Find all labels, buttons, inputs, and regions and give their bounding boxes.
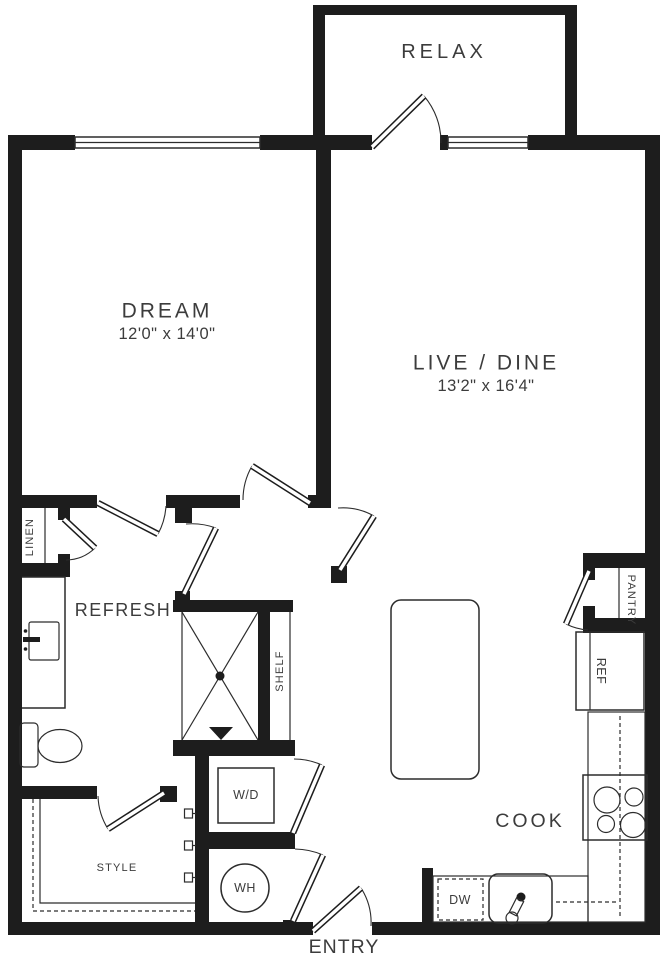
room-label-dream: DREAM <box>122 300 213 323</box>
wall-linen-bottom <box>8 563 70 577</box>
wall-exterior-top-2 <box>260 135 325 150</box>
vanity-faucet <box>23 637 40 642</box>
wall-balcony-right <box>565 5 577 137</box>
closet-label-pantry: PANTRY <box>625 575 637 626</box>
wall-exterior-top-5 <box>528 135 660 150</box>
wall-kitchen-stub <box>422 868 433 928</box>
wall-exterior-top-3 <box>325 135 372 150</box>
wall-bedroom-south-a <box>8 495 97 508</box>
closet-label-style: STYLE <box>97 862 138 874</box>
room-dims-live-dine: 13'2" x 16'4" <box>438 377 535 395</box>
wall-bedroom-living-divider <box>316 148 331 508</box>
closet-label-shelf: SHELF <box>274 650 286 691</box>
appliance-label-water-heater: WH <box>234 881 256 895</box>
appliance-label-dishwasher: DW <box>449 893 471 907</box>
wall-exterior-top-1 <box>8 135 75 150</box>
shower-drain <box>216 672 225 681</box>
wall-bedroom-south-c <box>308 495 331 508</box>
wall-linen-jamb-top <box>58 508 70 520</box>
wall-shower-bottom <box>173 740 295 756</box>
wall-shower-top <box>173 600 293 612</box>
wall-laundry-jamb-bottom <box>283 920 295 935</box>
room-label-relax: RELAX <box>401 41 487 63</box>
room-label-entry: ENTRY <box>309 936 380 958</box>
wall-exterior-left <box>8 135 22 935</box>
wall-shower-right <box>258 612 270 740</box>
bedroom-window <box>75 137 260 148</box>
wall-pantry-stub-bottom <box>583 606 595 633</box>
wall-exterior-bottom-right <box>372 922 660 935</box>
room-label-live-dine: LIVE / DINE <box>413 352 559 375</box>
wall-balcony-left <box>313 5 325 137</box>
appliance-label-refrigerator: REF <box>594 658 608 685</box>
wall-balcony-top <box>313 5 577 15</box>
wall-laundry-mid <box>195 832 295 849</box>
living-window <box>448 137 528 148</box>
wall-exterior-bottom-left <box>8 922 313 935</box>
room-label-cook: COOK <box>495 810 564 832</box>
room-dims-dream: 12'0" x 14'0" <box>119 325 216 343</box>
wall-bath-door-jamb <box>175 508 192 523</box>
appliance-label-washer-dryer: W/D <box>233 788 259 802</box>
wall-bedroom-south-b <box>166 495 240 508</box>
wall-style-top <box>8 786 97 799</box>
closet-label-linen: LINEN <box>24 518 36 556</box>
floor-plan: RELAX DREAM 12'0" x 14'0" LIVE / DINE 13… <box>0 0 660 960</box>
room-label-refresh: REFRESH <box>75 600 172 620</box>
floor-plan-page: RELAX DREAM 12'0" x 14'0" LIVE / DINE 13… <box>0 0 660 960</box>
